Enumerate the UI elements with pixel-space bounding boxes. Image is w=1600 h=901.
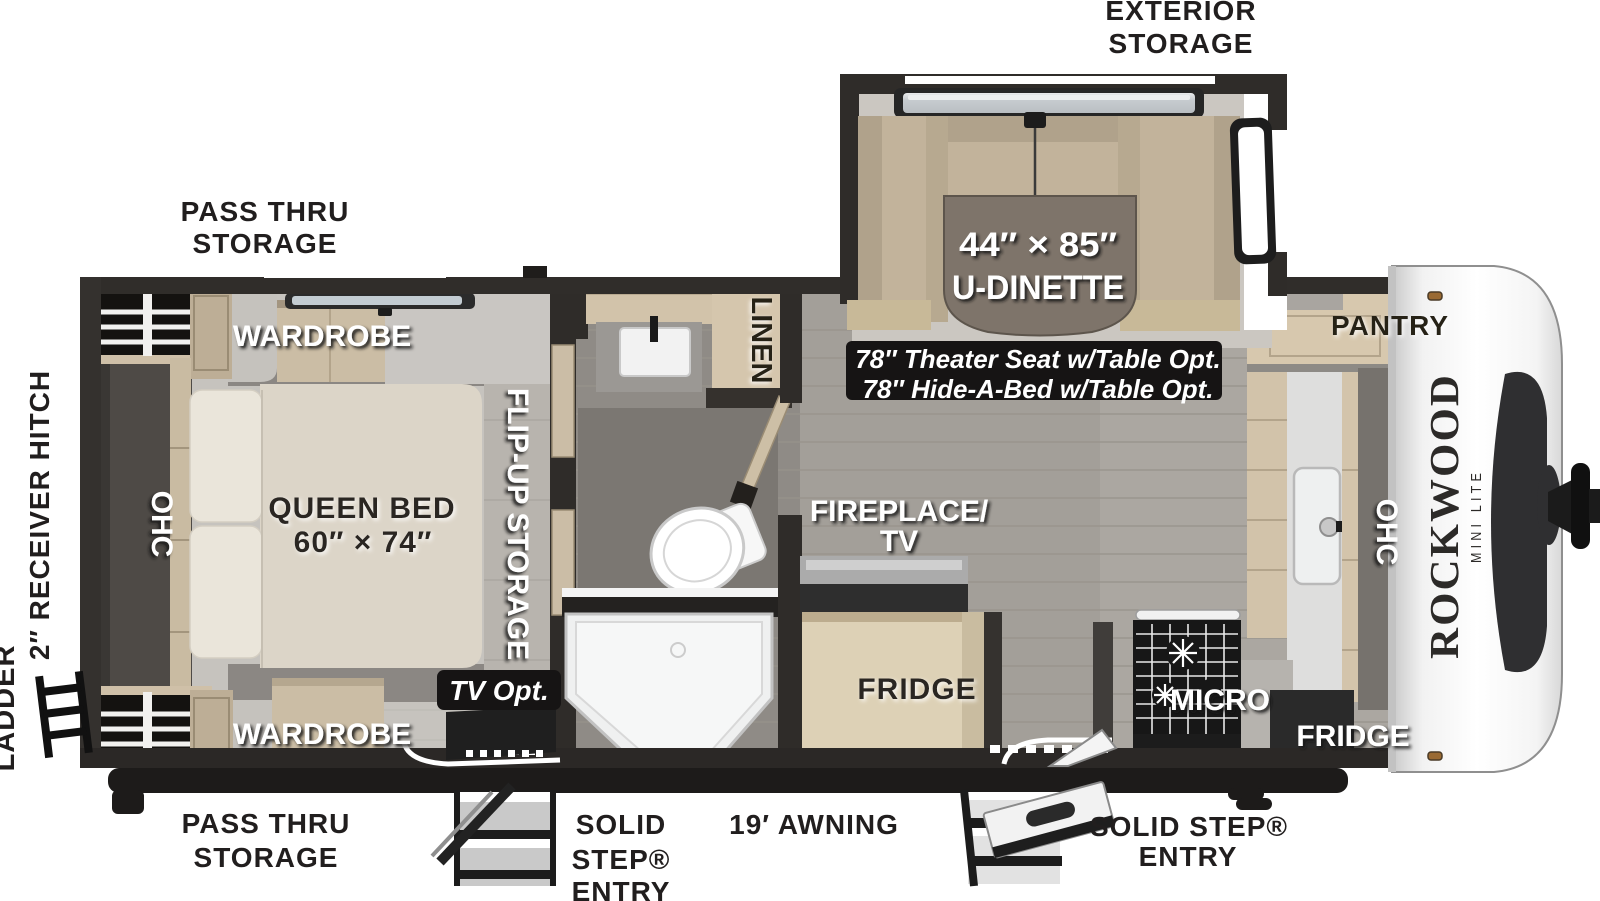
svg-text:EXTERIOR: EXTERIOR	[1105, 0, 1256, 26]
svg-text:STORAGE: STORAGE	[1109, 28, 1254, 59]
svg-text:LINEN: LINEN	[745, 297, 777, 384]
svg-text:ENTRY: ENTRY	[1139, 841, 1238, 872]
svg-text:ROCKWOOD: ROCKWOOD	[1421, 373, 1467, 659]
svg-text:PASS THRU: PASS THRU	[181, 196, 350, 227]
svg-text:PANTRY: PANTRY	[1331, 310, 1449, 341]
svg-text:FIREPLACE/: FIREPLACE/	[810, 495, 989, 528]
svg-text:78″ Hide-A-Bed w/Table Opt.: 78″ Hide-A-Bed w/Table Opt.	[863, 374, 1214, 404]
svg-text:STEP®: STEP®	[572, 844, 671, 875]
svg-text:2″ RECEIVER HITCH: 2″ RECEIVER HITCH	[24, 370, 55, 660]
svg-text:STORAGE: STORAGE	[193, 228, 338, 259]
svg-text:SOLID STEP®: SOLID STEP®	[1090, 811, 1288, 842]
svg-text:19′ AWNING: 19′ AWNING	[729, 809, 899, 840]
svg-text:OHC: OHC	[145, 491, 178, 558]
svg-text:MINI LITE: MINI LITE	[1468, 469, 1485, 563]
svg-text:FLIP-UP STORAGE: FLIP-UP STORAGE	[501, 388, 534, 660]
svg-text:LADDER: LADDER	[0, 645, 21, 772]
svg-text:WARDROBE: WARDROBE	[233, 320, 411, 353]
svg-text:FRIDGE: FRIDGE	[1296, 720, 1409, 753]
svg-text:44″ × 85″: 44″ × 85″	[959, 226, 1117, 264]
svg-text:60″ × 74″: 60″ × 74″	[294, 526, 433, 559]
svg-text:U-DINETTE: U-DINETTE	[952, 269, 1124, 307]
svg-text:OHC: OHC	[1370, 499, 1403, 566]
svg-text:SOLID: SOLID	[576, 809, 667, 840]
svg-text:WARDROBE: WARDROBE	[233, 718, 411, 751]
svg-text:78″ Theater Seat w/Table Opt.: 78″ Theater Seat w/Table Opt.	[855, 344, 1221, 374]
svg-text:FRIDGE: FRIDGE	[857, 673, 976, 706]
svg-text:TV: TV	[880, 525, 918, 558]
svg-text:STORAGE: STORAGE	[194, 842, 339, 873]
svg-text:QUEEN BED: QUEEN BED	[268, 492, 455, 525]
svg-text:PASS THRU: PASS THRU	[182, 808, 351, 839]
svg-text:TV Opt.: TV Opt.	[449, 675, 549, 706]
svg-text:MICRO: MICRO	[1170, 684, 1270, 717]
svg-text:ENTRY: ENTRY	[572, 876, 671, 901]
